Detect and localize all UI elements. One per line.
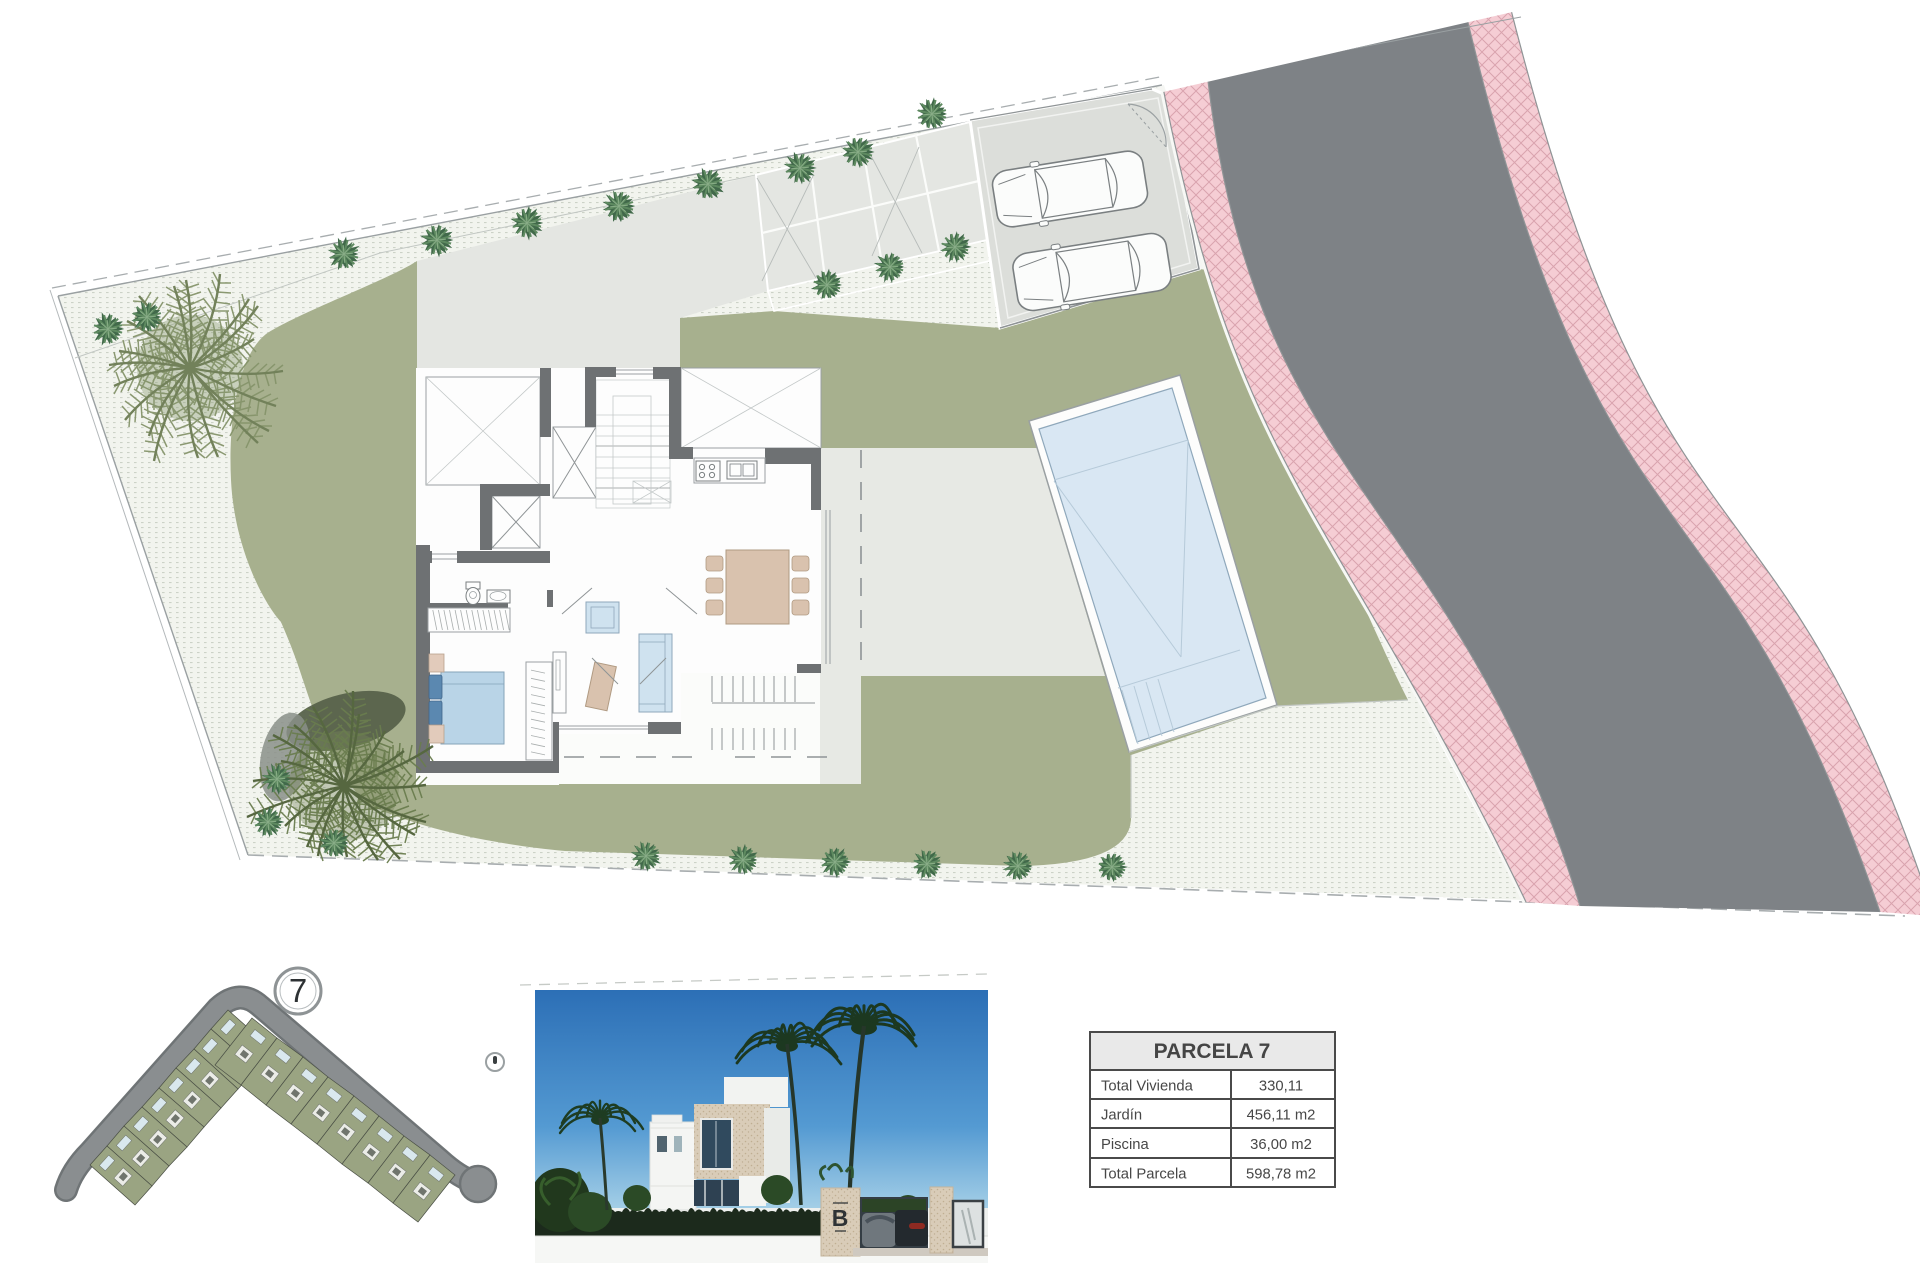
svg-text:36,00 m2: 36,00 m2 <box>1250 1137 1312 1153</box>
svg-text:Piscina: Piscina <box>1101 1137 1149 1153</box>
svg-text:Total Parcela: Total Parcela <box>1101 1167 1187 1183</box>
svg-text:Total Vivienda: Total Vivienda <box>1101 1079 1194 1095</box>
svg-text:598,78 m2: 598,78 m2 <box>1246 1167 1316 1183</box>
svg-text:PARCELA 7: PARCELA 7 <box>1154 1040 1271 1063</box>
svg-text:7: 7 <box>289 972 307 1009</box>
svg-text:B: B <box>832 1205 849 1231</box>
svg-text:456,11 m2: 456,11 m2 <box>1247 1108 1316 1124</box>
svg-text:Jardín: Jardín <box>1101 1108 1142 1124</box>
svg-text:330,11: 330,11 <box>1259 1079 1303 1095</box>
